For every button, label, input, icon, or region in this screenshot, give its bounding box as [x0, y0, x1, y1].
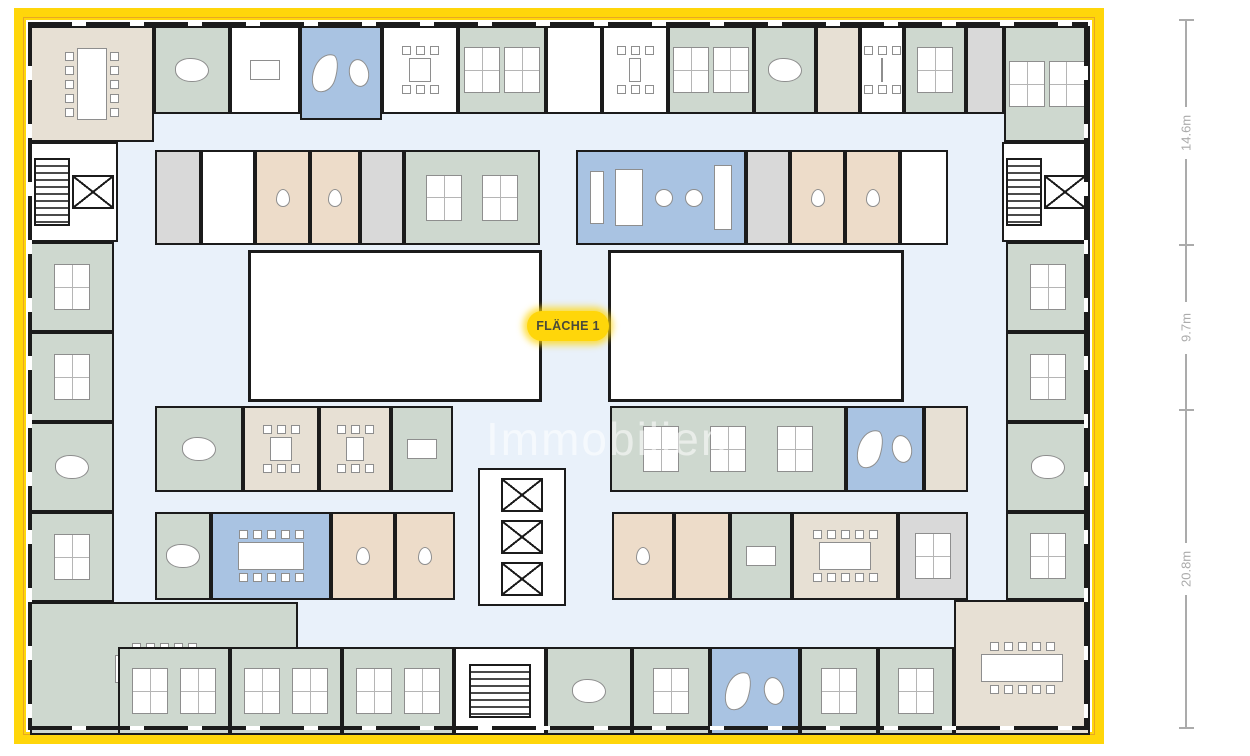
lounge-bottom: [710, 647, 800, 735]
desk-cluster-icon: [917, 47, 953, 93]
stairs-icon: [469, 664, 531, 718]
office-small: [391, 406, 453, 492]
counter-icon: [590, 171, 604, 223]
chair-row: [402, 46, 439, 55]
desk-cluster-icon: [1030, 533, 1066, 579]
dimension-line: [1185, 354, 1187, 411]
desk-cluster-icon: [821, 668, 857, 714]
chair-icon: [878, 85, 887, 94]
desk-cluster-icon: [1030, 354, 1066, 400]
exec-desk-icon: [1031, 455, 1065, 479]
desk-cluster-icon: [710, 426, 746, 472]
chair-icon: [1046, 685, 1055, 694]
utility-room: [360, 150, 404, 245]
utility-office: [898, 512, 968, 600]
chair-icon: [402, 46, 411, 55]
dimension-line: [1185, 410, 1187, 543]
sofa-blob-icon: [308, 50, 343, 95]
elevator-icon: [501, 478, 543, 512]
chair-icon: [65, 108, 74, 117]
chair-icon: [65, 66, 74, 75]
table-icon: [238, 542, 304, 570]
chair-row: [337, 425, 374, 434]
table-group: [238, 530, 304, 582]
desk-cluster-icon: [54, 264, 90, 310]
desk-cluster-icon: [643, 426, 679, 472]
meeting-room: [602, 26, 668, 114]
chair-icon: [617, 85, 626, 94]
office-exec: [154, 26, 230, 114]
office-exec: [1006, 422, 1090, 512]
open-office: [904, 26, 966, 114]
open-office: [610, 406, 846, 492]
window-band-right: [1084, 22, 1088, 730]
chair-icon: [65, 80, 74, 89]
chair-icon: [1018, 642, 1027, 651]
chair-icon: [110, 66, 119, 75]
open-office: [632, 647, 710, 735]
open-office-top-right: [1004, 26, 1090, 142]
elevator-icon: [1044, 175, 1086, 209]
chair-icon: [110, 94, 119, 103]
chair-icon: [263, 425, 272, 434]
room: [816, 26, 860, 114]
toilet-icon: [811, 189, 825, 207]
chair-icon: [337, 464, 346, 473]
wc: [845, 150, 900, 245]
chair-row: [263, 425, 300, 434]
elevator-core: [478, 468, 566, 606]
open-office: [458, 26, 546, 114]
cafeteria: [576, 150, 746, 245]
chair-icon: [295, 573, 304, 582]
desk-cluster-icon: [132, 668, 168, 714]
chair-row: [990, 685, 1055, 694]
desk-cluster-icon: [713, 47, 749, 93]
room: [201, 150, 255, 245]
chair-icon: [617, 46, 626, 55]
chair-icon: [878, 46, 887, 55]
table-icon: [77, 48, 107, 120]
room: [674, 512, 730, 600]
desk-cluster-icon: [482, 175, 518, 221]
chair-icon: [110, 108, 119, 117]
dimension-label: 14.6m: [1173, 107, 1199, 159]
chair-row: [337, 464, 374, 473]
chair-icon: [281, 573, 290, 582]
open-office: [404, 150, 540, 245]
chair-icon: [645, 46, 654, 55]
chair-icon: [337, 425, 346, 434]
desk-icon: [250, 60, 280, 80]
open-office: [668, 26, 754, 114]
dimension-line: [1185, 20, 1187, 107]
desk-cluster-icon: [426, 175, 462, 221]
chair-row: [239, 530, 304, 539]
desk-icon: [746, 546, 776, 566]
office-exec: [155, 512, 211, 600]
wc: [331, 512, 395, 600]
chair-row: [263, 464, 300, 473]
elevator-icon: [501, 520, 543, 554]
booth-seating-icon: [714, 165, 732, 231]
wc: [255, 150, 310, 245]
chair-icon: [351, 464, 360, 473]
wc: [310, 150, 360, 245]
table-group: [864, 46, 901, 94]
chair-icon: [841, 573, 850, 582]
chair-icon: [841, 530, 850, 539]
meeting-room-blue: [211, 512, 331, 600]
desk-cluster-icon: [1009, 61, 1045, 107]
chair-row: [990, 642, 1055, 651]
desk-cluster-icon: [1030, 264, 1066, 310]
courtyard-right: [608, 250, 904, 402]
exec-desk-icon: [175, 58, 209, 82]
wc: [395, 512, 455, 600]
office-exec: [30, 422, 114, 512]
sofa-blob-icon: [720, 668, 755, 713]
room: [900, 150, 948, 245]
office-exec: [754, 26, 816, 114]
chair-icon: [855, 573, 864, 582]
utility-room: [155, 150, 201, 245]
desk-cluster-icon: [54, 534, 90, 580]
chair-icon: [892, 46, 901, 55]
chair-row: [864, 85, 901, 94]
utility-room: [746, 150, 790, 245]
chair-icon: [263, 464, 272, 473]
chair-icon: [239, 530, 248, 539]
stairwell-elevator-right: [1002, 142, 1090, 242]
desk-cluster-icon: [915, 533, 951, 579]
dimension-label: 9.7m: [1173, 302, 1199, 354]
open-office: [878, 647, 954, 735]
chair-icon: [827, 530, 836, 539]
toilet-icon: [418, 547, 432, 565]
dimension-line: [1185, 595, 1187, 728]
office-exec: [155, 406, 243, 492]
open-office: [342, 647, 454, 735]
elevator-icon: [501, 562, 543, 596]
toilet-icon: [276, 189, 290, 207]
table-icon: [981, 654, 1063, 682]
chair-icon: [864, 85, 873, 94]
conference-room: [792, 512, 898, 600]
chair-icon: [277, 464, 286, 473]
dimension-line: [1185, 245, 1187, 302]
chair-icon: [239, 573, 248, 582]
desk-cluster-icon: [292, 668, 328, 714]
area-label-badge: FLÄCHE 1: [527, 311, 609, 341]
window-band-left: [28, 22, 32, 730]
chair-icon: [1032, 642, 1041, 651]
chair-icon: [65, 52, 74, 61]
table-group: [981, 642, 1063, 694]
chair-icon: [430, 46, 439, 55]
chair-icon: [110, 80, 119, 89]
chair-icon: [365, 425, 374, 434]
office-small: [730, 512, 792, 600]
table-group: [263, 425, 300, 473]
chair-icon: [351, 425, 360, 434]
chair-icon: [855, 530, 864, 539]
chair-row: [617, 46, 654, 55]
exec-desk-icon: [182, 437, 216, 461]
chair-icon: [277, 425, 286, 434]
open-office: [30, 332, 114, 422]
long-table-icon: [615, 169, 643, 226]
sofa-blob-icon: [761, 675, 786, 707]
desk-cluster-icon: [653, 668, 689, 714]
floor-plan-page: Immobilien FLÄCHE 1 14.6m9.7m20.8m: [0, 0, 1250, 756]
meeting-room: [860, 26, 904, 114]
round-table-icon: [685, 189, 703, 207]
chair-icon: [1018, 685, 1027, 694]
toilet-icon: [636, 547, 650, 565]
chair-icon: [253, 530, 262, 539]
table-icon: [409, 58, 431, 82]
open-office: [1006, 242, 1090, 332]
chair-row: [402, 85, 439, 94]
window-band-top: [28, 22, 1088, 26]
room: [924, 406, 968, 492]
lounge-top: [300, 26, 382, 120]
exec-desk-icon: [572, 679, 606, 703]
chair-icon: [1004, 685, 1013, 694]
desk-cluster-icon: [898, 668, 934, 714]
chair-icon: [1032, 685, 1041, 694]
table-icon: [819, 542, 871, 570]
chair-icon: [631, 46, 640, 55]
dimension-tick: [1179, 409, 1194, 411]
chair-icon: [645, 85, 654, 94]
wc: [612, 512, 674, 600]
desk-cluster-icon: [180, 668, 216, 714]
open-office: [30, 242, 114, 332]
desk-cluster-icon: [464, 47, 500, 93]
desk-cluster-icon: [54, 354, 90, 400]
chair-icon: [990, 642, 999, 651]
stairs-icon: [1006, 158, 1041, 225]
window-band-bottom: [28, 726, 1088, 730]
desk-cluster-icon: [1049, 61, 1085, 107]
meeting-room: [319, 406, 391, 492]
chair-icon: [1046, 642, 1055, 651]
table-group: [617, 46, 654, 94]
chair-icon: [813, 530, 822, 539]
exec-desk-icon: [55, 455, 89, 479]
table-icon: [270, 437, 292, 461]
toilet-icon: [866, 189, 880, 207]
desk-cluster-icon: [404, 668, 440, 714]
chair-row: [813, 530, 878, 539]
dimension-tick: [1179, 244, 1194, 246]
open-office: [1006, 332, 1090, 422]
sofa-blob-icon: [889, 433, 914, 465]
dimension-tick: [1179, 19, 1194, 21]
elevator-icon: [72, 175, 114, 209]
chair-icon: [1004, 642, 1013, 651]
chair-icon: [110, 52, 119, 61]
chair-column: [110, 52, 119, 117]
chair-row: [239, 573, 304, 582]
office-exec: [546, 647, 632, 735]
table-group: [402, 46, 439, 94]
chair-icon: [267, 530, 276, 539]
table-icon: [346, 437, 364, 461]
chair-icon: [631, 85, 640, 94]
chair-icon: [65, 94, 74, 103]
stairs-icon: [34, 158, 69, 225]
chair-icon: [430, 85, 439, 94]
open-office: [1006, 512, 1090, 600]
wc: [790, 150, 845, 245]
chair-icon: [416, 85, 425, 94]
office-small: [230, 26, 300, 114]
room: [546, 26, 602, 114]
stairwell-elevator-left: [30, 142, 118, 242]
chair-icon: [869, 573, 878, 582]
sofa-blob-icon: [852, 426, 887, 471]
dimension-label: 20.8m: [1173, 543, 1199, 595]
table-group: [337, 425, 374, 473]
chair-icon: [295, 530, 304, 539]
round-table-icon: [655, 189, 673, 207]
chair-icon: [291, 464, 300, 473]
toilet-icon: [328, 189, 342, 207]
dimension-line: [1185, 159, 1187, 246]
conference-room-top-left: [30, 26, 154, 142]
desk-cluster-icon: [504, 47, 540, 93]
chair-row: [864, 46, 901, 55]
desk-cluster-icon: [673, 47, 709, 93]
open-office: [800, 647, 878, 735]
chair-row: [813, 573, 878, 582]
table-group: [813, 530, 878, 582]
utility-room: [966, 26, 1004, 114]
exec-desk-icon: [166, 544, 200, 568]
meeting-room: [243, 406, 319, 492]
chair-icon: [402, 85, 411, 94]
table-icon: [629, 58, 641, 82]
table-group: [65, 48, 119, 120]
stairwell-bottom: [454, 647, 546, 735]
chair-icon: [813, 573, 822, 582]
chair-icon: [281, 530, 290, 539]
chair-icon: [892, 85, 901, 94]
desk-cluster-icon: [777, 426, 813, 472]
chair-icon: [253, 573, 262, 582]
chair-icon: [416, 46, 425, 55]
toilet-icon: [356, 547, 370, 565]
chair-icon: [827, 573, 836, 582]
chair-icon: [267, 573, 276, 582]
exec-desk-icon: [768, 58, 802, 82]
lounge-mid-right: [846, 406, 924, 492]
meeting-room: [382, 26, 458, 114]
desk-icon: [407, 439, 437, 459]
sofa-blob-icon: [346, 57, 371, 89]
desk-cluster-icon: [244, 668, 280, 714]
open-office: [118, 647, 230, 735]
chair-row: [617, 85, 654, 94]
chair-icon: [291, 425, 300, 434]
chair-icon: [869, 530, 878, 539]
table-icon: [881, 58, 883, 82]
dimension-tick: [1179, 727, 1194, 729]
chair-icon: [990, 685, 999, 694]
courtyard-left: [248, 250, 542, 402]
desk-cluster-icon: [356, 668, 392, 714]
conference-room-bottom-right: [954, 600, 1090, 735]
open-office: [30, 512, 114, 602]
chair-column: [65, 52, 74, 117]
chair-icon: [365, 464, 374, 473]
chair-icon: [864, 46, 873, 55]
open-office: [230, 647, 342, 735]
